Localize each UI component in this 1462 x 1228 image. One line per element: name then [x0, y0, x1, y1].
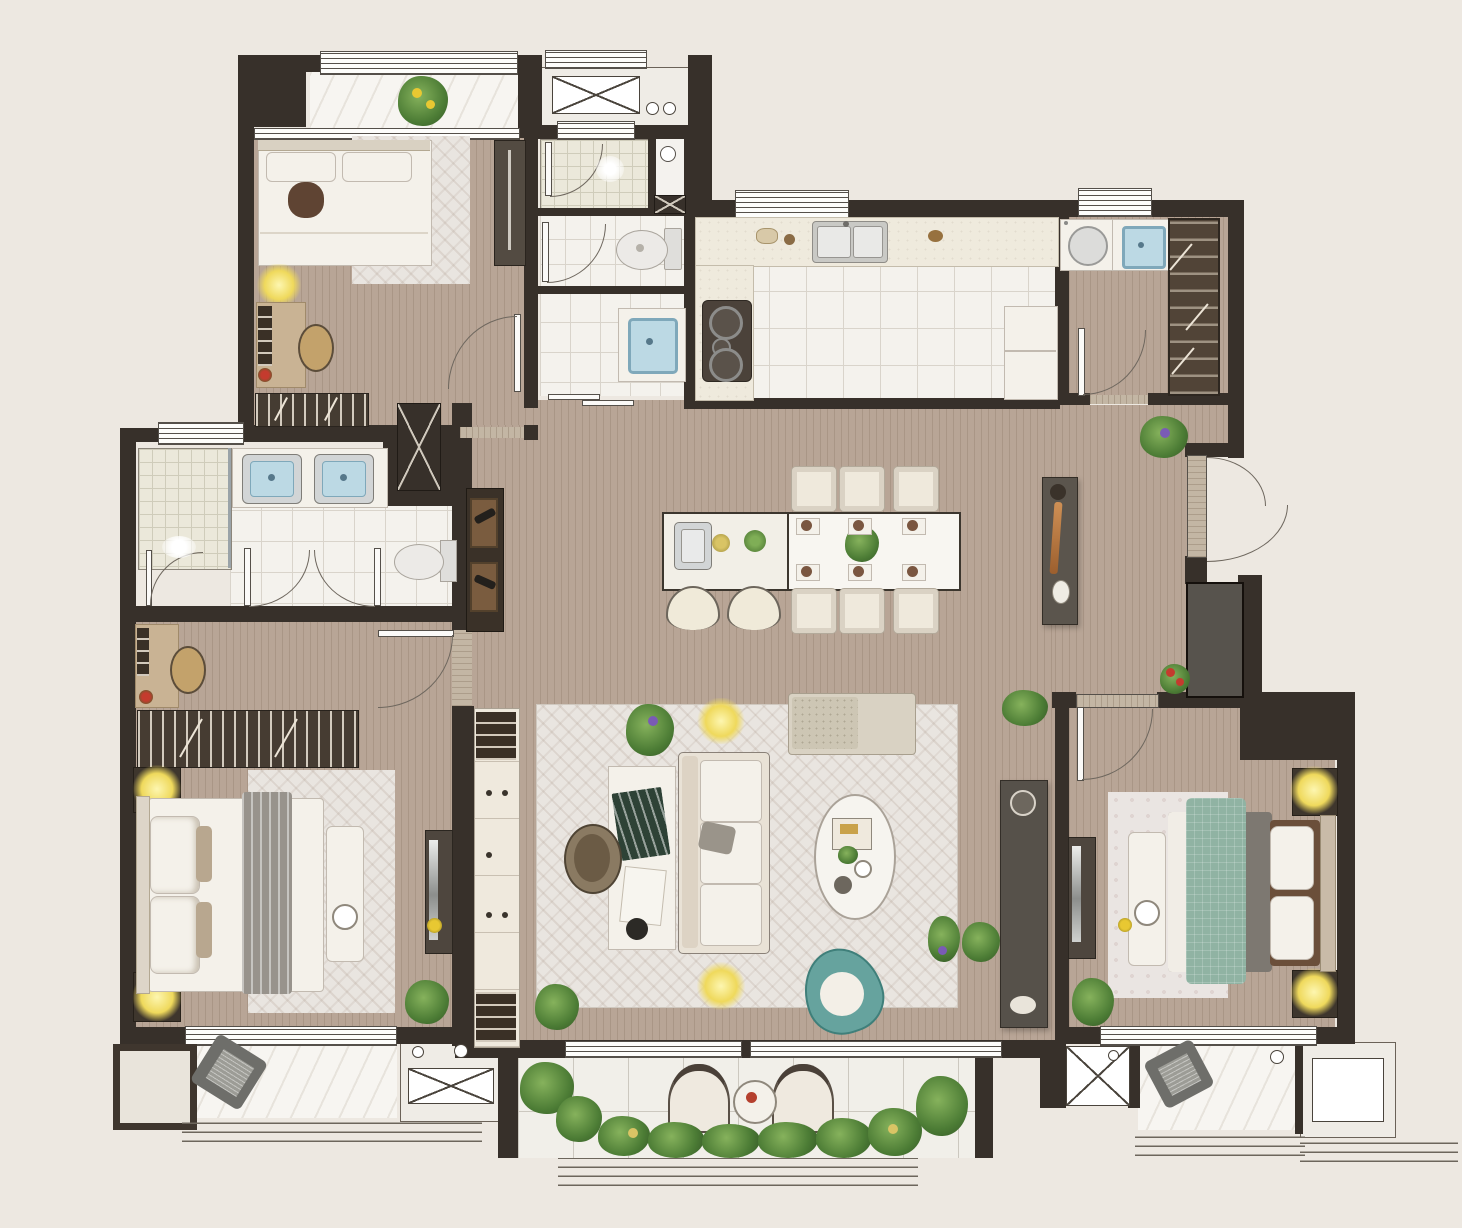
pipe-circle-icon [663, 102, 676, 115]
balcony-shrub-icon [556, 1096, 602, 1142]
yellow-flower-icon [426, 100, 435, 109]
pipe-circle-icon [646, 102, 659, 115]
floor-plan-canvas [0, 0, 1462, 1228]
railing [182, 1118, 482, 1142]
pipe-circle-icon [412, 1046, 424, 1058]
balcony-tea-table [733, 1080, 777, 1124]
flowering-plant-icon [398, 76, 448, 126]
balcony-shrub-icon [598, 1116, 650, 1156]
railing [1300, 1140, 1458, 1162]
pipe-circle-icon [454, 1044, 468, 1058]
railing [558, 1158, 918, 1186]
pipe-circle-icon [1108, 1050, 1119, 1061]
ac-unit-outline-icon [1066, 1046, 1130, 1106]
table-decor-red [746, 1092, 757, 1103]
outdoor-layer [0, 0, 1462, 1228]
railing [1135, 1130, 1305, 1156]
balcony-shrub-icon [916, 1076, 968, 1136]
ac-unit-outline-icon [552, 76, 640, 114]
balcony-shrub-icon [648, 1122, 704, 1158]
ac-unit-outline-icon [1312, 1058, 1384, 1122]
yellow-flower-icon [412, 88, 422, 98]
ac-unit-outline-icon [408, 1068, 494, 1104]
yellow-shrub-icon [888, 1124, 898, 1134]
balcony-shrub-icon [816, 1118, 872, 1158]
balcony-shrub-icon [758, 1122, 818, 1158]
balcony-shrub-icon [702, 1124, 760, 1158]
yellow-shrub-icon [628, 1128, 638, 1138]
pipe-circle-icon [1270, 1050, 1284, 1064]
